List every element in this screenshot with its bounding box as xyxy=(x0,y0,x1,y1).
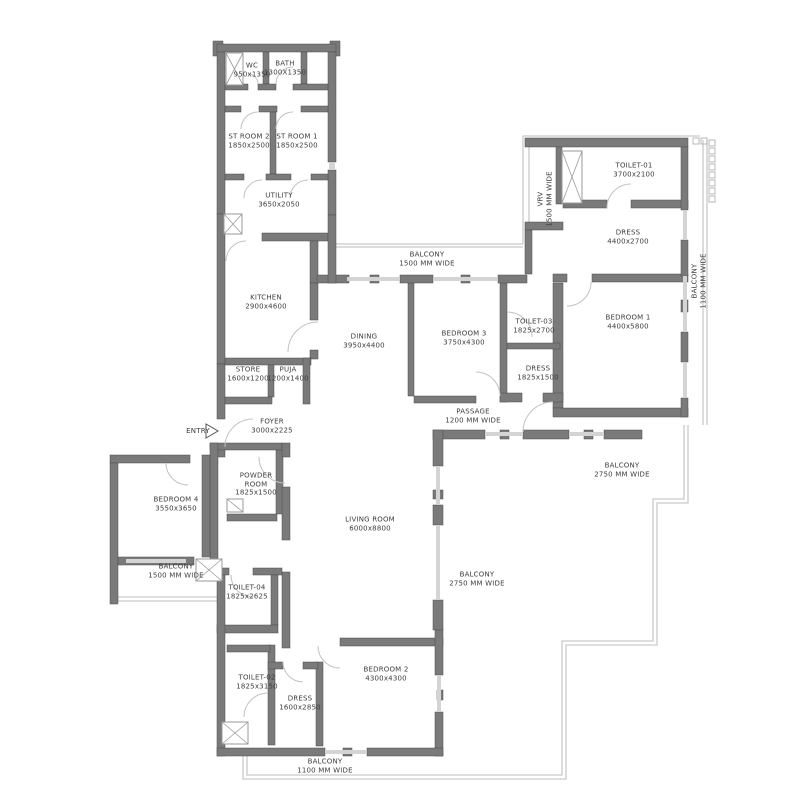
floor-plan: WC950x1350 BATH1300X1350 ST ROOM 21850x2… xyxy=(0,0,800,800)
room-label-dress-3: DRESS1825x1500 xyxy=(517,365,559,382)
room-label-bedroom-1: BEDROOM 14400x5800 xyxy=(605,314,650,331)
room-label-bedroom-2: BEDROOM 24300x4300 xyxy=(363,666,408,683)
balcony-label-right-1100: BALCONY1100 MM WIDE xyxy=(691,253,708,309)
room-label-dress-1: DRESS4400x2700 xyxy=(607,229,649,246)
balcony-label-right-2750: BALCONY2750 MM WIDE xyxy=(594,462,650,479)
room-label-toilet-01: TOILET-013700x2100 xyxy=(613,162,655,179)
balcony-label-top: BALCONY1500 MM WIDE xyxy=(399,251,455,268)
louver-hatch xyxy=(693,138,715,202)
room-label-toilet-04: TOILET-041825x2625 xyxy=(226,584,268,601)
room-label-kitchen: KITCHEN2900x4600 xyxy=(245,294,287,311)
room-label-bath: BATH1300X1350 xyxy=(264,60,306,77)
room-label-dress-2: DRESS1600x2850 xyxy=(279,695,321,712)
entry-label: ENTRY xyxy=(186,427,210,436)
room-label-bedroom-4: BEDROOM 43550x3650 xyxy=(153,496,198,513)
room-label-toilet-02: TOILET-021825x3150 xyxy=(236,674,278,691)
balcony-label-center-2750: BALCONY2750 MM WIDE xyxy=(449,571,505,588)
room-label-st-room-1: ST ROOM 11850x2500 xyxy=(276,133,318,150)
balcony-label-bottom-1100: BALCONY1100 MM WIDE xyxy=(297,758,353,775)
vrv-label: VRV1500 MM WIDE xyxy=(537,171,554,227)
room-label-powder-room: POWDERROOM1825x1500 xyxy=(235,471,277,497)
room-label-st-room-2: ST ROOM 21850x2500 xyxy=(228,133,270,150)
walls xyxy=(110,41,688,756)
room-label-dining: DINING3950x4400 xyxy=(343,333,385,350)
room-label-store: STORE1600x1200 xyxy=(227,366,269,383)
room-label-utility: UTILITY3650x2050 xyxy=(258,192,300,209)
balcony-label-left: BALCONY1500 MM WIDE xyxy=(148,563,204,580)
room-label-bedroom-3: BEDROOM 33750x4300 xyxy=(441,330,486,347)
room-label-toilet-03: TOILET-031825x2700 xyxy=(513,318,555,335)
room-label-living-room: LIVING ROOM6000x8800 xyxy=(345,516,395,533)
room-label-foyer: FOYER3000x2225 xyxy=(251,418,293,435)
passage-label: PASSAGE1200 MM WIDE xyxy=(445,408,501,425)
room-label-puja: PUJA1200x1400 xyxy=(267,366,309,383)
